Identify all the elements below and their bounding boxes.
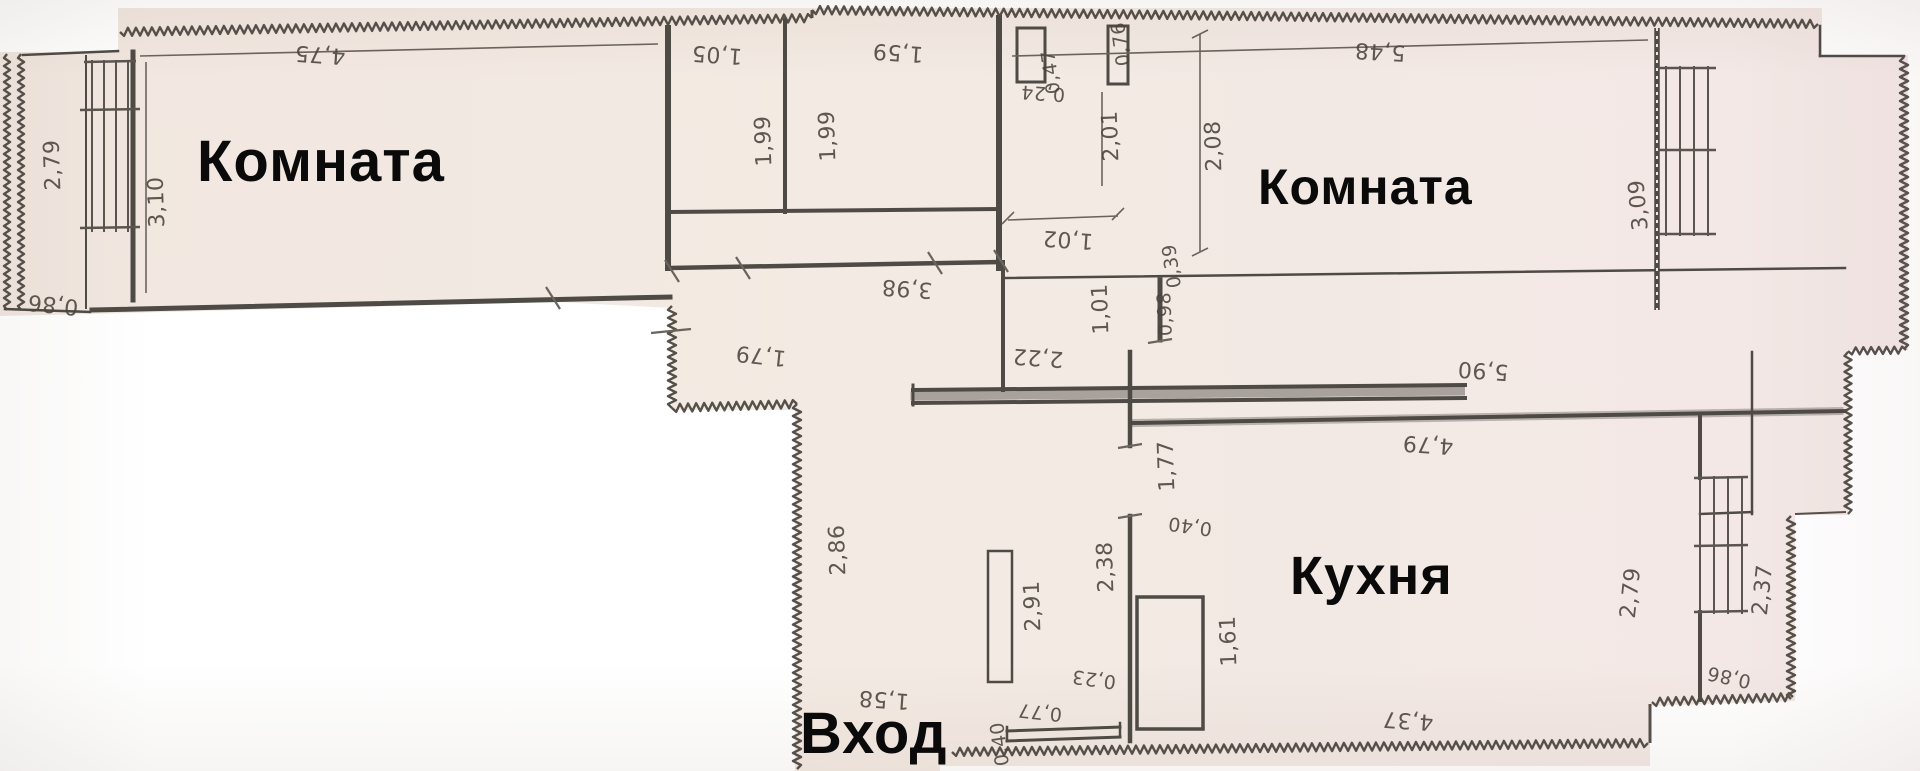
dim-room-right-width: 5,48 [1354,37,1406,65]
dim-room-left-width: 4,75 [294,40,347,68]
dim-kitchen-bottom: 4,37 [1382,706,1435,734]
dim-wall-stub: 0,98 [1153,291,1177,336]
room-label-left: Комната [197,128,445,195]
dim-hall-offset-2: 0,77 [1017,699,1063,726]
dim-closet1-depth: 1,99 [751,115,778,167]
dim-kitchen-width: 4,79 [1402,430,1455,458]
dim-duct-wall: 2,01 [1098,110,1125,162]
dim-kitchen-wall: 5,90 [1457,356,1510,384]
room-label-right: Комната [1258,158,1473,216]
room-label-kitchen: Кухня [1290,545,1453,607]
floor-plan-drawing [0,0,1920,771]
dim-room-left-depth: 3,10 [144,176,171,228]
dim-passage-top: 1,02 [1042,225,1095,253]
dim-corridor-length: 3,98 [881,274,934,302]
dim-kitchen-door: 1,77 [1154,440,1181,492]
dim-closet2-depth: 1,99 [815,110,842,162]
dim-closet2-width: 1,59 [872,38,925,66]
dim-kitchen-shaft: 1,61 [1216,615,1243,667]
dim-room-right-left: 2,08 [1201,120,1228,172]
dim-hall-depth: 2,86 [825,524,852,576]
dim-kbal-left: 2,79 [1616,566,1646,619]
dim-lobby-width: 2,22 [1012,343,1065,371]
dim-balcony-left-width: 0,86 [26,289,79,319]
dim-duct-offset: 0,24 [1020,80,1066,105]
dim-hall-door: 2,91 [1020,580,1047,632]
dim-hall-wall: 2,38 [1093,541,1120,593]
dim-lobby-opening: 1,01 [1088,283,1115,335]
floor-plan: Комната Комната Кухня Вход 2,79 0,86 4,7… [0,0,1920,771]
dim-balcony-left-height: 2,79 [40,139,67,191]
dim-hall-width: 1,58 [858,685,911,713]
dim-closet1-width: 1,05 [691,40,744,68]
dim-kbal-right: 2,37 [1748,563,1778,616]
dim-corridor-width: 1,79 [734,340,787,370]
dim-room-right-right: 3,09 [1624,179,1653,232]
